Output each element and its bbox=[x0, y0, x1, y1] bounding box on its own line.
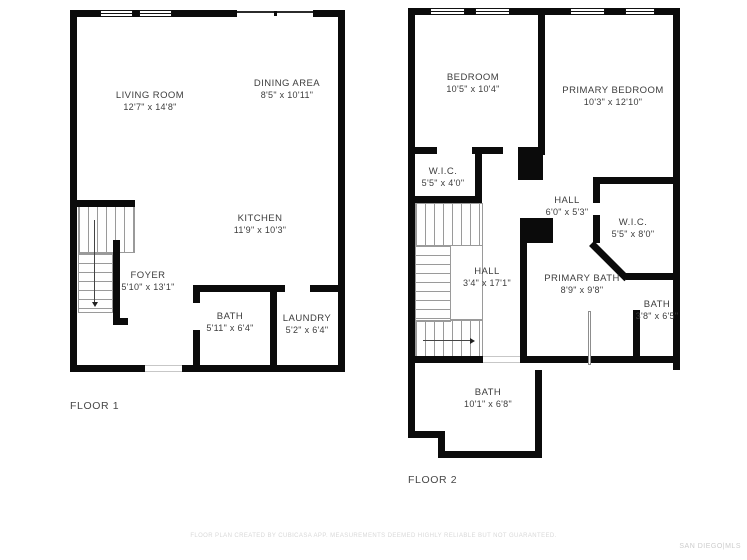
hall-wall-block bbox=[520, 218, 553, 243]
wall bbox=[605, 8, 625, 15]
room-label-living-room: LIVING ROOM 12'7" x 14'8" bbox=[90, 90, 210, 113]
wall bbox=[172, 10, 237, 17]
entry-door-opening bbox=[145, 365, 182, 372]
floor1-stairs-upper-flight bbox=[78, 203, 135, 253]
window-icon bbox=[625, 8, 655, 15]
room-label-kitchen: KITCHEN 11'9" x 10'3" bbox=[200, 213, 320, 236]
room-label-primary-bedroom: PRIMARY BEDROOM 10'3" x 12'10" bbox=[543, 85, 683, 108]
wic1-bottom-wall bbox=[408, 196, 482, 203]
bath-left-wall bbox=[193, 330, 200, 365]
wall bbox=[70, 10, 77, 372]
window-icon bbox=[475, 8, 510, 15]
floor2-title: FLOOR 2 bbox=[408, 474, 457, 486]
wic1-right-wall bbox=[475, 147, 482, 203]
wall bbox=[338, 10, 345, 372]
wall bbox=[535, 370, 542, 458]
wall-stub bbox=[113, 318, 128, 325]
door-tick bbox=[560, 357, 562, 361]
stair-wall bbox=[70, 200, 135, 207]
room-label-bedroom: BEDROOM 10'5" x 10'4" bbox=[413, 72, 533, 95]
foyer-stair-wall bbox=[113, 240, 120, 325]
bath-top-wall bbox=[193, 285, 270, 292]
stair-landing bbox=[450, 245, 483, 320]
door-tick bbox=[230, 366, 232, 370]
room-label-dining-area: DINING AREA 8'5" x 10'11" bbox=[227, 78, 347, 101]
stairs-arrowhead-icon bbox=[470, 338, 475, 344]
bath-door-opening bbox=[483, 356, 520, 363]
bath-left-wall bbox=[193, 285, 200, 303]
wall bbox=[70, 10, 100, 17]
hall-bath-divider-wall bbox=[520, 243, 527, 363]
wall bbox=[438, 451, 542, 458]
wall bbox=[182, 365, 345, 372]
laundry-top-wall bbox=[277, 285, 285, 292]
window-icon bbox=[100, 10, 133, 17]
small-bath-left-wall bbox=[633, 310, 640, 363]
floor2-stairs-upper-flight bbox=[415, 203, 483, 247]
wic2-bottom-wall bbox=[626, 273, 673, 280]
floor1-plan: LIVING ROOM 12'7" x 14'8" DINING AREA 8'… bbox=[70, 10, 345, 372]
window-icon bbox=[139, 10, 172, 17]
floor2-plan: BEDROOM 10'5" x 10'4" PRIMARY BEDROOM 10… bbox=[408, 8, 680, 458]
opening-tick bbox=[274, 11, 277, 16]
wall bbox=[520, 356, 680, 363]
mls-watermark: SAN DIEGO|MLS bbox=[679, 543, 741, 550]
wall bbox=[70, 365, 145, 372]
wic2-angled-wall bbox=[589, 241, 629, 281]
shower-glass-partition bbox=[588, 311, 591, 365]
disclaimer-text: FLOOR PLAN CREATED BY CUBICASA APP. MEAS… bbox=[0, 533, 747, 539]
window-icon bbox=[570, 8, 605, 15]
floorplan-page: { "colors": { "wall": "#0b0b0b", "text":… bbox=[0, 0, 747, 560]
wall bbox=[465, 8, 475, 15]
stairwell-bottom-wall bbox=[408, 356, 483, 363]
wall bbox=[408, 8, 415, 438]
wic2-left-wall bbox=[593, 177, 600, 203]
wic2-left-wall bbox=[593, 215, 600, 243]
bedroom-divider-wall bbox=[538, 8, 545, 155]
room-label-wic-1: W.I.C. 5'5" x 4'0" bbox=[403, 166, 483, 189]
room-label-bath-bottom: BATH 10'1" x 6'8" bbox=[438, 387, 538, 410]
laundry-top-wall bbox=[310, 285, 345, 292]
floor1-title: FLOOR 1 bbox=[70, 400, 119, 412]
stairs-direction-arrow-icon bbox=[94, 220, 95, 302]
window-icon bbox=[430, 8, 465, 15]
door-tick bbox=[653, 357, 655, 361]
wall-chase bbox=[518, 147, 543, 180]
door-tick bbox=[123, 365, 125, 370]
bath-laundry-divider-wall bbox=[270, 285, 277, 365]
wic2-top-wall bbox=[593, 177, 673, 184]
room-label-bath-small: BATH 3'8" x 6'5" bbox=[607, 299, 707, 322]
stairs-arrowhead-icon bbox=[92, 302, 98, 307]
room-label-hall-upper: HALL 6'0" x 5'3" bbox=[517, 195, 617, 218]
wall bbox=[673, 8, 680, 370]
bedroom-bottom-wall bbox=[408, 147, 437, 154]
stairs-direction-arrow-icon bbox=[423, 340, 471, 341]
floor2-stairs-mid-flight bbox=[415, 245, 451, 322]
